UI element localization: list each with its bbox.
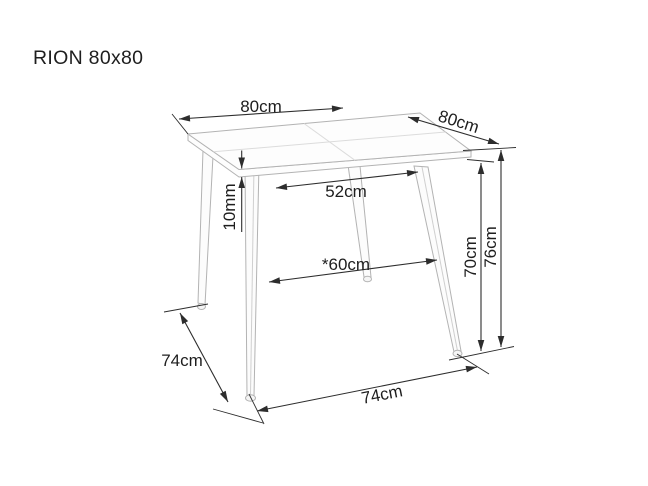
- dimension-diagram: RION 80x80 80cm 80cm 10mm 52cm *60cm 70c…: [0, 0, 648, 486]
- dim-label-clearance-height: 70cm: [461, 236, 480, 278]
- table-leg-front-right-edge: [422, 167, 458, 351]
- dim-label-base-width: 74cm: [360, 381, 404, 408]
- ext-front-left-foot: [213, 409, 263, 423]
- ext-right-corner: [463, 148, 516, 151]
- dim-label-thickness: 10mm: [220, 183, 239, 230]
- table-foot-front-right: [453, 350, 462, 356]
- dim-label-inner-width-upper: 52cm: [325, 182, 367, 201]
- dim-label-inner-width-lower: *60cm: [322, 255, 370, 274]
- ext-left-corner: [172, 114, 188, 134]
- product-title: RION 80x80: [33, 47, 143, 69]
- table-foot-back-right: [364, 276, 372, 282]
- dim-label-base-depth: 74cm: [161, 351, 203, 370]
- ext-under-top-right: [467, 160, 494, 163]
- dim-label-total-height: 76cm: [481, 226, 500, 268]
- ext-right-foot-cross: [457, 354, 489, 374]
- dim-label-top-width: 80cm: [240, 97, 282, 116]
- table-leg-back-left: [198, 150, 213, 305]
- table-leg-front-right: [414, 166, 461, 352]
- product-dimension-page: RION 80x80 80cm 80cm 10mm 52cm *60cm 70c…: [0, 0, 648, 486]
